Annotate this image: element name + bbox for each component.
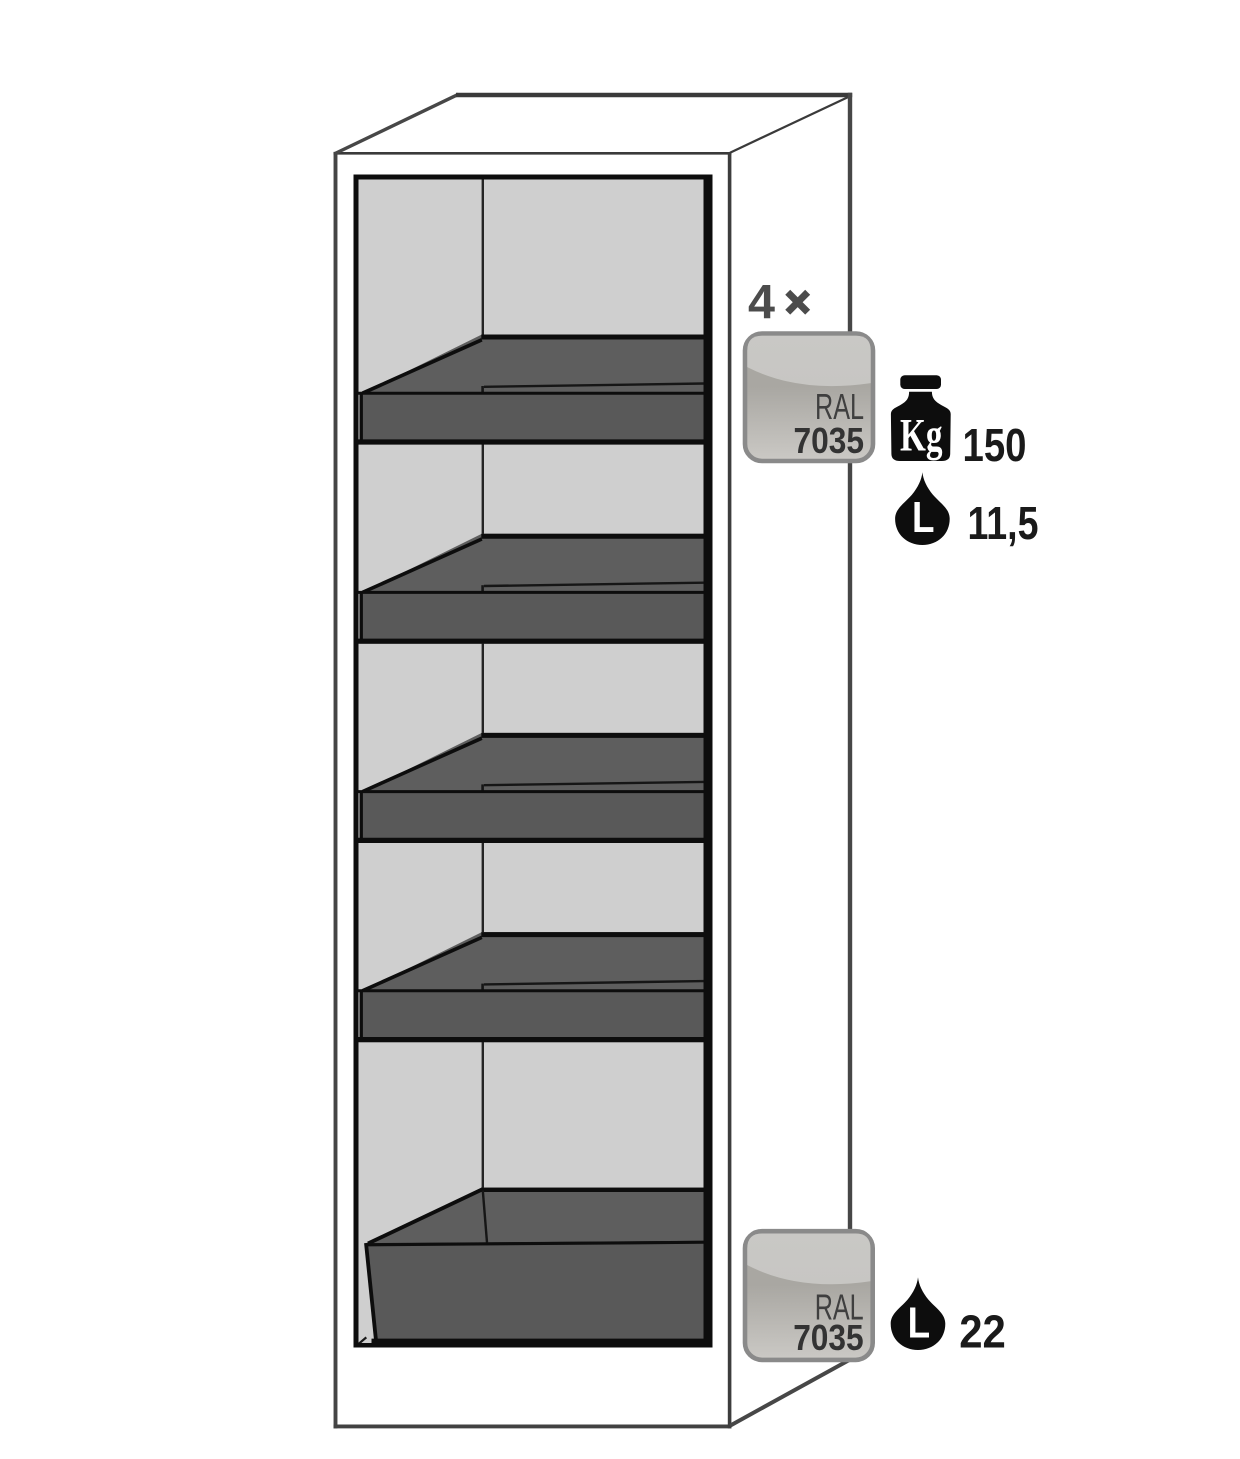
- svg-text:7035: 7035: [793, 1317, 864, 1358]
- svg-text:150: 150: [963, 419, 1027, 471]
- svg-text:L: L: [908, 1300, 931, 1348]
- svg-text:7035: 7035: [794, 420, 865, 461]
- svg-text:4: 4: [748, 276, 775, 330]
- svg-text:22: 22: [959, 1306, 1006, 1358]
- svg-text:Kg: Kg: [900, 410, 943, 462]
- svg-text:11,5: 11,5: [968, 497, 1039, 549]
- svg-text:L: L: [912, 494, 935, 542]
